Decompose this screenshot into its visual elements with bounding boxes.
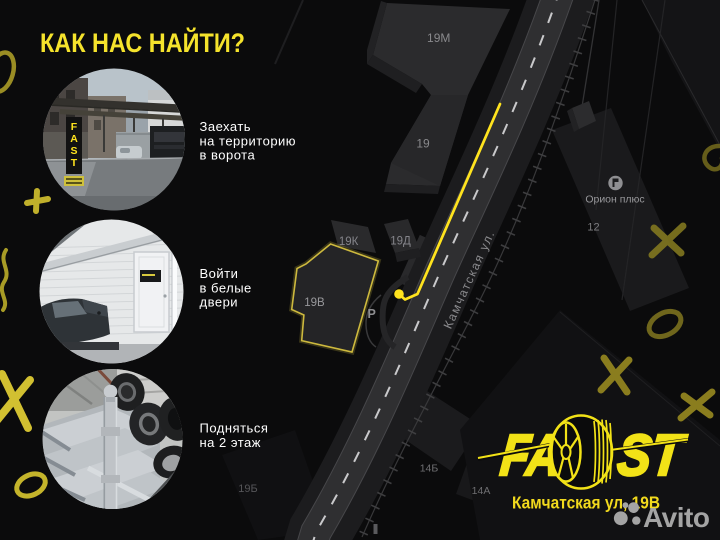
svg-text:19Б: 19Б xyxy=(238,483,257,495)
svg-text:в ворота: в ворота xyxy=(200,148,256,163)
svg-text:двери: двери xyxy=(200,295,239,310)
svg-text:на 2 этаж: на 2 этаж xyxy=(200,435,261,450)
svg-text:19К: 19К xyxy=(339,236,359,248)
svg-text:19В: 19В xyxy=(304,297,325,309)
svg-text:T: T xyxy=(71,157,78,169)
svg-text:Войти: Войти xyxy=(200,266,239,281)
svg-text:Подняться: Подняться xyxy=(200,421,269,436)
svg-text:19: 19 xyxy=(416,137,430,151)
svg-text:19М: 19М xyxy=(427,31,450,45)
svg-text:Заехать: Заехать xyxy=(200,119,252,134)
svg-text:14Б: 14Б xyxy=(420,463,439,475)
svg-text:на территорию: на территорию xyxy=(200,133,297,148)
svg-text:S: S xyxy=(70,145,77,157)
svg-text:A: A xyxy=(70,133,78,145)
svg-text:F: F xyxy=(71,121,78,133)
svg-text:14А: 14А xyxy=(472,485,491,497)
svg-text:Орион плюс: Орион плюс xyxy=(585,194,644,206)
svg-text:ST: ST xyxy=(615,423,690,488)
svg-text:Р: Р xyxy=(368,307,376,321)
svg-text:в белые: в белые xyxy=(200,280,252,295)
svg-text:Avito: Avito xyxy=(643,502,710,533)
svg-text:19Д: 19Д xyxy=(390,236,411,248)
svg-text:12: 12 xyxy=(587,222,599,234)
svg-text:КАК НАС НАЙТИ?: КАК НАС НАЙТИ? xyxy=(40,27,245,58)
